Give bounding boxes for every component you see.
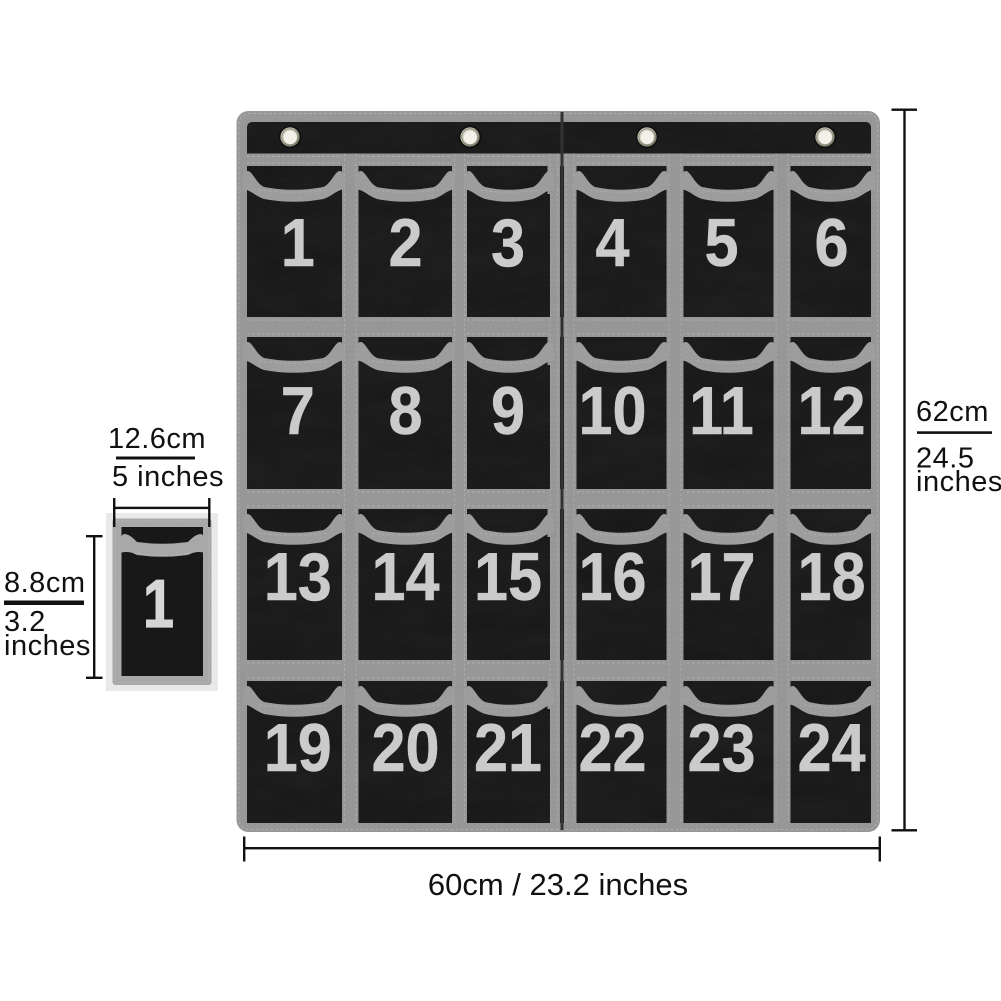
svg-text:5 inches: 5 inches — [112, 461, 224, 493]
svg-text:60cm / 23.2 inches: 60cm / 23.2 inches — [428, 867, 688, 902]
svg-text:inches: inches — [4, 630, 91, 662]
svg-text:12.6cm: 12.6cm — [108, 423, 206, 455]
svg-text:inches: inches — [916, 466, 1001, 498]
svg-text:1: 1 — [143, 567, 174, 642]
svg-text:8.8cm: 8.8cm — [4, 567, 85, 599]
svg-text:62cm: 62cm — [916, 396, 989, 428]
